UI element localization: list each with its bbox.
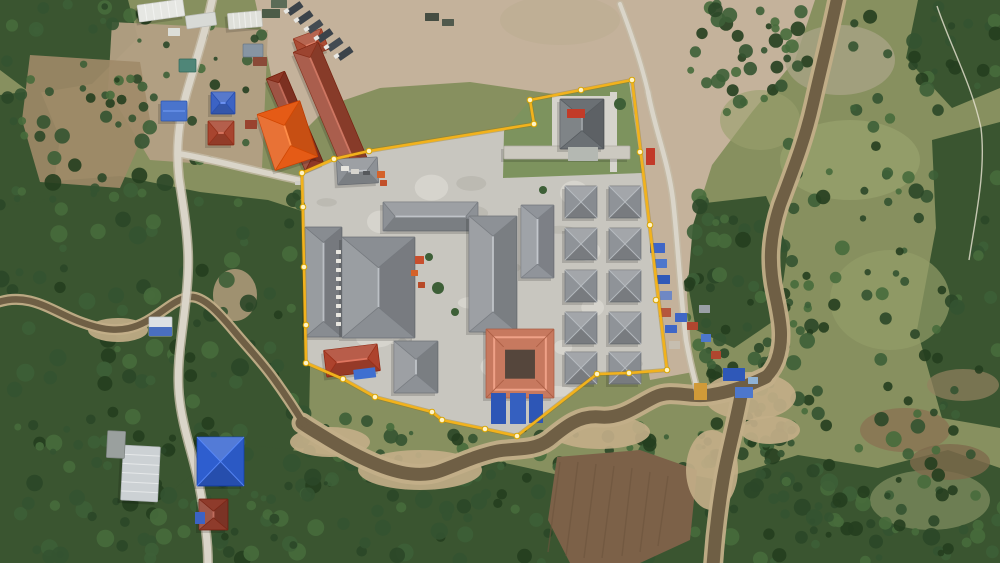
boundary-vertex[interactable] — [340, 376, 346, 382]
boundary-vertex[interactable] — [331, 156, 337, 162]
red-roof-house — [195, 499, 228, 533]
small-structure — [748, 377, 758, 384]
small-structure — [687, 322, 698, 330]
small-structure — [341, 166, 349, 171]
small-structure — [168, 28, 180, 36]
gray-blue-house — [243, 44, 263, 57]
small-structure — [646, 148, 655, 165]
boundary-vertex[interactable] — [439, 417, 445, 423]
small-structure — [675, 313, 687, 322]
small-structure — [336, 313, 341, 317]
small-structure — [336, 286, 341, 290]
screenshot-stage — [0, 0, 1000, 563]
camp-unit-roof — [562, 270, 597, 305]
blue-tarp-house — [158, 101, 187, 124]
boundary-vertex[interactable] — [527, 97, 533, 103]
small-structure — [699, 305, 710, 313]
boundary-vertex[interactable] — [531, 121, 537, 127]
small-structure — [271, 0, 287, 8]
boundary-vertex[interactable] — [482, 426, 488, 432]
small-structure — [694, 383, 707, 400]
camp-unit-roof — [606, 312, 641, 347]
small-structure — [660, 291, 672, 300]
camp-unit-roof — [606, 228, 641, 263]
boundary-vertex[interactable] — [299, 170, 305, 176]
camp-unit-roof — [606, 352, 641, 387]
boundary-vertex[interactable] — [372, 394, 378, 400]
small-structure — [336, 322, 341, 326]
small-structure — [253, 57, 267, 66]
boundary-vertex[interactable] — [366, 148, 372, 154]
gray-roof-building — [380, 202, 478, 234]
admin-building — [557, 99, 604, 161]
small-structure — [491, 393, 506, 424]
boundary-vertex[interactable] — [300, 204, 306, 210]
small-structure — [377, 171, 385, 178]
teal-roof-house — [179, 59, 196, 72]
boundary-vertex[interactable] — [303, 322, 309, 328]
boundary-vertex[interactable] — [301, 264, 307, 270]
boundary-vertex[interactable] — [653, 297, 659, 303]
small-structure — [336, 277, 341, 281]
small-structure — [669, 341, 680, 349]
small-structure — [245, 120, 257, 129]
field-layer — [548, 450, 697, 563]
shed — [106, 431, 125, 459]
small-structure — [723, 368, 745, 381]
small-structure — [701, 334, 711, 342]
long-gray-building — [466, 216, 517, 335]
camp-unit-roof — [606, 270, 641, 305]
boundary-vertex[interactable] — [626, 370, 632, 376]
boundary-vertex[interactable] — [647, 222, 653, 228]
small-structure — [336, 295, 341, 299]
small-structure — [657, 275, 670, 284]
small-structure — [363, 171, 370, 175]
small-structure — [411, 270, 418, 276]
camp-unit-roof — [562, 352, 597, 387]
small-structure — [336, 250, 341, 254]
small-structure — [510, 393, 526, 424]
boundary-vertex[interactable] — [664, 367, 670, 373]
blue-roof-building — [194, 437, 244, 489]
small-structure — [418, 282, 425, 288]
small-structure — [425, 13, 439, 21]
white-blue-hut — [149, 317, 172, 336]
satellite-map[interactable] — [0, 0, 1000, 563]
small-structure — [380, 180, 387, 186]
small-structure — [415, 256, 424, 264]
long-gray-building — [518, 205, 554, 281]
large-gray-building — [339, 237, 415, 341]
camp-unit-roof — [606, 186, 641, 221]
small-structure — [262, 9, 280, 18]
red-roof-house — [205, 121, 234, 148]
small-structure — [735, 387, 753, 398]
boundary-vertex[interactable] — [629, 77, 635, 83]
small-structure — [665, 325, 677, 333]
camp-unit-roof — [562, 312, 597, 347]
small-structure — [351, 169, 359, 174]
camp-unit-roof — [562, 228, 597, 263]
boundary-vertex[interactable] — [594, 371, 600, 377]
small-structure — [711, 351, 721, 359]
boundary-vertex[interactable] — [578, 87, 584, 93]
small-structure — [442, 19, 454, 26]
boundary-vertex[interactable] — [514, 433, 520, 439]
small-structure — [336, 268, 341, 272]
boundary-vertex[interactable] — [429, 409, 435, 415]
small-structure — [336, 304, 341, 308]
gray-roof-building — [391, 341, 438, 396]
salmon-roof-building — [483, 329, 554, 401]
boundary-vertex[interactable] — [637, 149, 643, 155]
blue-roof-house — [208, 92, 235, 117]
camp-unit-roof — [562, 186, 597, 221]
small-structure — [336, 259, 341, 263]
white-roof-house — [224, 11, 263, 33]
boundary-vertex[interactable] — [303, 360, 309, 366]
